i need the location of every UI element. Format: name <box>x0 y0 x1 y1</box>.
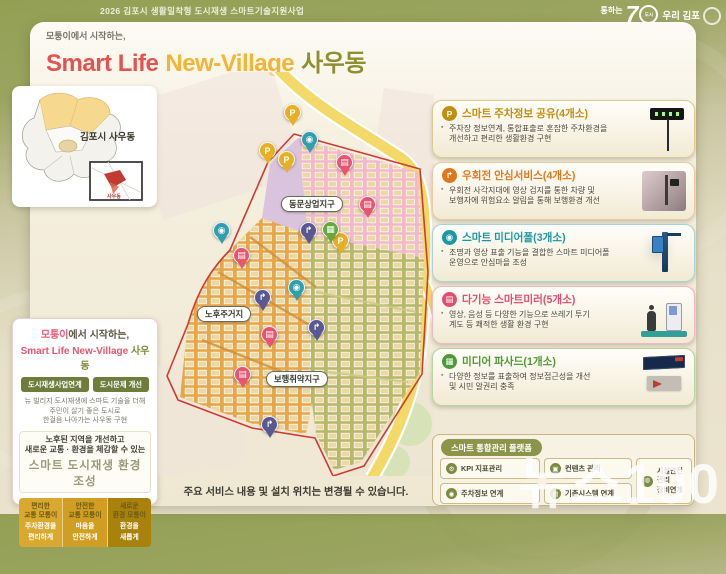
tag-urban-regeneration: 도시재생사업연계 <box>21 377 89 392</box>
card-title: 스마트 주차정보 공유(4개소) <box>462 106 588 121</box>
card-title: 미디어 파사드(1개소) <box>462 354 556 369</box>
parking-sign-photo <box>641 106 687 153</box>
locator-label: 김포시 사우동 <box>80 131 135 143</box>
news-watermark-icon <box>703 7 721 25</box>
platform-item-label: 주차정보 연계 <box>461 489 503 499</box>
car-icon: ◉ <box>446 488 457 499</box>
platform-grid: ⚙ KPI 지표관리 ▣ 컨텐츠 관리 ◍ 시설안전관리 장비연계 ◉ 주차정보… <box>440 458 692 504</box>
cctv-icon: ◉ <box>442 230 457 245</box>
goal-lines: 노후된 지역을 개선하고 새로운 교통 · 환경을 체감할 수 있는 <box>21 435 149 456</box>
summary-panel: 모퉁이에서 시작하는, Smart Life New-Village 사우동 도… <box>12 318 158 505</box>
service-card-mediafacade: ▦ 미디어 파사드(1개소) 다양한 정보를 표출하여 정보접근성을 개선 및 … <box>432 348 695 406</box>
parking-icon: P <box>442 106 457 121</box>
pillar-line: 안전하게 <box>64 533 105 542</box>
pillar-line: 환경 모퉁이 <box>109 511 150 520</box>
trash-icon: ▤ <box>442 292 457 307</box>
platform-title: 스마트 통합관리 플랫폼 <box>441 439 542 456</box>
service-card-smartmirror: ▤ 다기능 스마트미러(5개소) 영상, 음성 등 다양한 기능으로 쓰레기 투… <box>432 286 695 344</box>
card-title: 스마트 미디어폴(3개소) <box>462 230 566 245</box>
media-pole-photo <box>641 230 687 277</box>
platform-item-label: 시설안전관리 장비연계 <box>657 467 686 495</box>
summary-kicker-rest: 에서 시작하는, <box>68 330 129 341</box>
gimpo-outline-map: 김포시 사우동 사우동 <box>12 86 157 207</box>
summary-kicker-highlight: 모퉁이 <box>41 330 69 341</box>
screen-icon: ▦ <box>442 354 457 369</box>
platform-item-contents: ▣ 컨텐츠 관리 <box>544 458 632 479</box>
logo-tagline: 통하는 <box>601 5 623 16</box>
platform-item-label: 컨텐츠 관리 <box>565 464 601 474</box>
pillar-line: 편리한 <box>20 502 61 511</box>
platform-item-kpi: ⚙ KPI 지표관리 <box>440 458 540 479</box>
pillar-line: 주차환경을 <box>20 522 61 531</box>
hero-title-block: 모퉁이에서 시작하는, Smart LifeNew-Village사우동 <box>46 29 366 78</box>
pillar-row: 편리한 교통 모퉁이 주차환경을 편리하게 안전한 교통 모퉁이 마음을 안전하… <box>19 498 151 548</box>
platform-item-facility: ◍ 시설안전관리 장비연계 <box>636 458 692 504</box>
platform-box: 스마트 통합관리 플랫폼 ⚙ KPI 지표관리 ▣ 컨텐츠 관리 ◍ 시설안전관… <box>432 434 695 506</box>
summary-title-en: Smart Life New-Village <box>21 346 129 357</box>
goal-box: 노후된 지역을 개선하고 새로운 교통 · 환경을 체감할 수 있는 스마트 도… <box>19 431 151 493</box>
pillar-line: 새롭게 <box>109 533 150 542</box>
summary-tags: 도시재생사업연계 도시문제 개선 <box>19 377 151 392</box>
pillar-line: 환경을 <box>109 522 150 531</box>
facility-icon: ◍ <box>642 476 653 487</box>
gear-icon: ⚙ <box>446 463 457 474</box>
summary-title: Smart Life New-Village 사우동 <box>19 342 151 372</box>
zone-label-commercial: 동문상업지구 <box>281 196 343 212</box>
right-turn-photo <box>641 168 687 215</box>
pillar-line: 교통 모퉁이 <box>20 511 61 520</box>
summary-kicker: 모퉁이에서 시작하는, <box>19 326 151 341</box>
service-card-mediapole: ◉ 스마트 미디어폴(3개소) 조명과 영상 표출 기능을 결합한 스마트 미디… <box>432 224 695 282</box>
summary-description: 뉴 빌리지 도시재생에 스마트 기술을 더해 주민이 살기 좋은 도시로 한걸음… <box>19 397 151 426</box>
smart-mirror-photo <box>641 292 687 339</box>
right-turn-icon: ↱ <box>442 168 457 183</box>
platform-item-legacy-link: ▤ 기존시스템 연계 <box>544 483 632 504</box>
district-map-canvas <box>158 72 434 476</box>
pillar-new: 새로운 환경 모퉁이 환경을 새롭게 <box>108 498 151 548</box>
platform-item-label: 기존시스템 연계 <box>565 489 614 499</box>
zone-label-old-housing: 노후주거지 <box>197 306 251 322</box>
hero-kicker: 모퉁이에서 시작하는, <box>46 29 366 42</box>
pillar-line: 새로운 <box>109 502 150 511</box>
inset-label: 사우동 <box>107 193 121 200</box>
logo-suffix: 우리 김포 <box>662 8 700 22</box>
platform-item-label: KPI 지표관리 <box>461 464 502 474</box>
service-card-rightturn: ↱ 우회전 안심서비스(4개소) 우회전 사각지대에 영상 검지를 통한 차량 … <box>432 162 695 220</box>
folder-icon: ▣ <box>550 463 561 474</box>
pillar-line: 교통 모퉁이 <box>64 511 105 520</box>
pillar-convenient: 편리한 교통 모퉁이 주차환경을 편리하게 <box>19 498 62 548</box>
tag-city-problem: 도시문제 개선 <box>93 377 149 392</box>
district-map <box>158 72 434 476</box>
card-title: 우회전 안심서비스(4개소) <box>462 168 575 183</box>
zone-label-pedestrian: 보행취약지구 <box>266 371 328 387</box>
pillar-line: 안전한 <box>64 502 105 511</box>
goal-title: 스마트 도시재생 환경 조성 <box>21 457 149 489</box>
link-icon: ▤ <box>550 488 561 499</box>
card-title: 다기능 스마트미러(5개소) <box>462 292 575 307</box>
platform-item-parking-link: ◉ 주차정보 연계 <box>440 483 540 504</box>
gimpo-locator-map: 김포시 사우동 사우동 <box>12 86 157 207</box>
pillar-safe: 안전한 교통 모퉁이 마음을 안전하게 <box>62 498 107 548</box>
pillar-line: 마음을 <box>64 522 105 531</box>
pillar-line: 편리하게 <box>20 533 61 542</box>
program-title: 2026 김포시 생활밀착형 도시재생 스마트기술지원사업 <box>100 5 304 17</box>
footnote: 주요 서비스 내용 및 설치 위치는 변경될 수 있습니다. <box>150 483 442 498</box>
media-facade-photo <box>641 354 687 401</box>
service-card-parking: P 스마트 주차정보 공유(4개소) 주차장 정보연계, 통합표출로 혼잡한 주… <box>432 100 695 158</box>
title-part-en1: Smart Life <box>46 50 158 77</box>
